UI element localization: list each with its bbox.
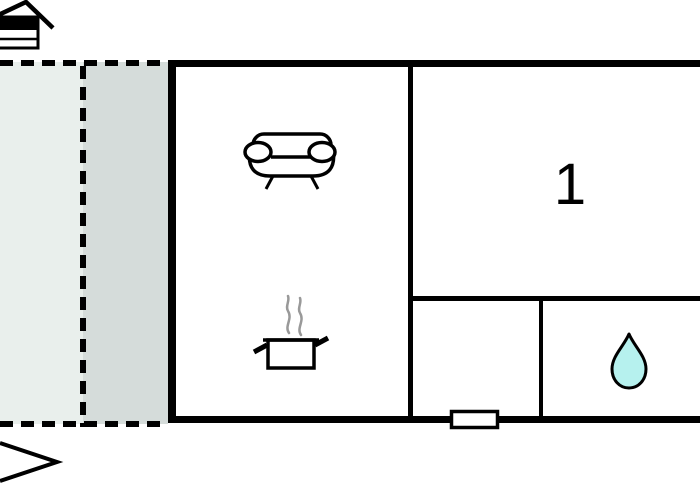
sofa-icon	[245, 134, 335, 189]
wall-living-divider	[408, 60, 413, 423]
wall-bedroom-divider	[413, 296, 700, 301]
wall-top	[168, 60, 700, 67]
north-arrow-icon	[0, 443, 57, 481]
wall-bottom	[168, 416, 700, 423]
house-level-icon	[0, 2, 53, 48]
steam-line	[299, 298, 302, 335]
floor-plan: 1	[0, 0, 700, 500]
water-drop-icon	[612, 334, 646, 388]
window-symbol	[452, 412, 498, 428]
wall-left	[168, 60, 176, 423]
steam-line	[287, 296, 290, 333]
terrace-dashed-boundary	[0, 63, 168, 427]
floor-plan-drawing	[0, 0, 700, 500]
bedroom-number-label: 1	[540, 156, 600, 214]
wall-bathroom-divider	[539, 296, 543, 423]
cooking-pot-icon	[254, 296, 328, 368]
